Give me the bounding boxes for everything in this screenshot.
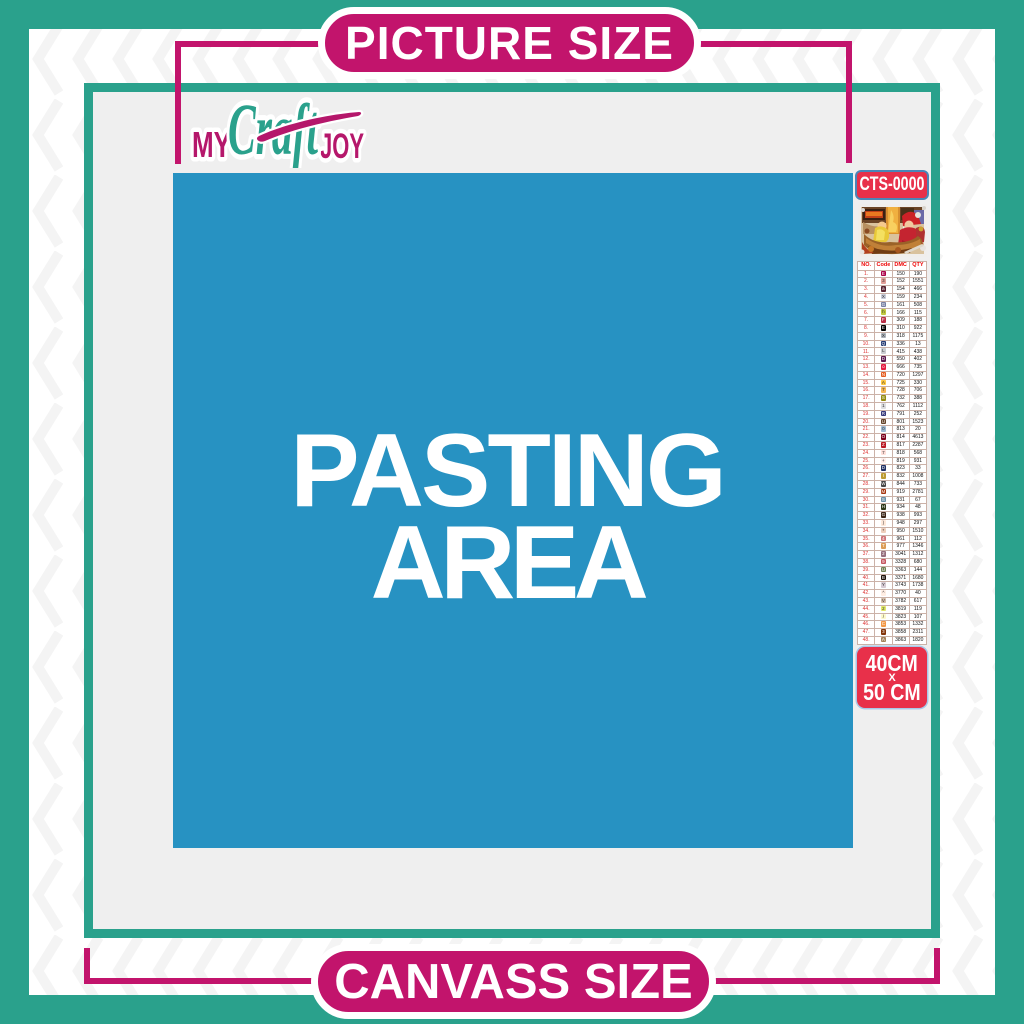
- svg-text:MY: MY: [192, 124, 231, 165]
- svg-text:JOY: JOY: [320, 127, 364, 166]
